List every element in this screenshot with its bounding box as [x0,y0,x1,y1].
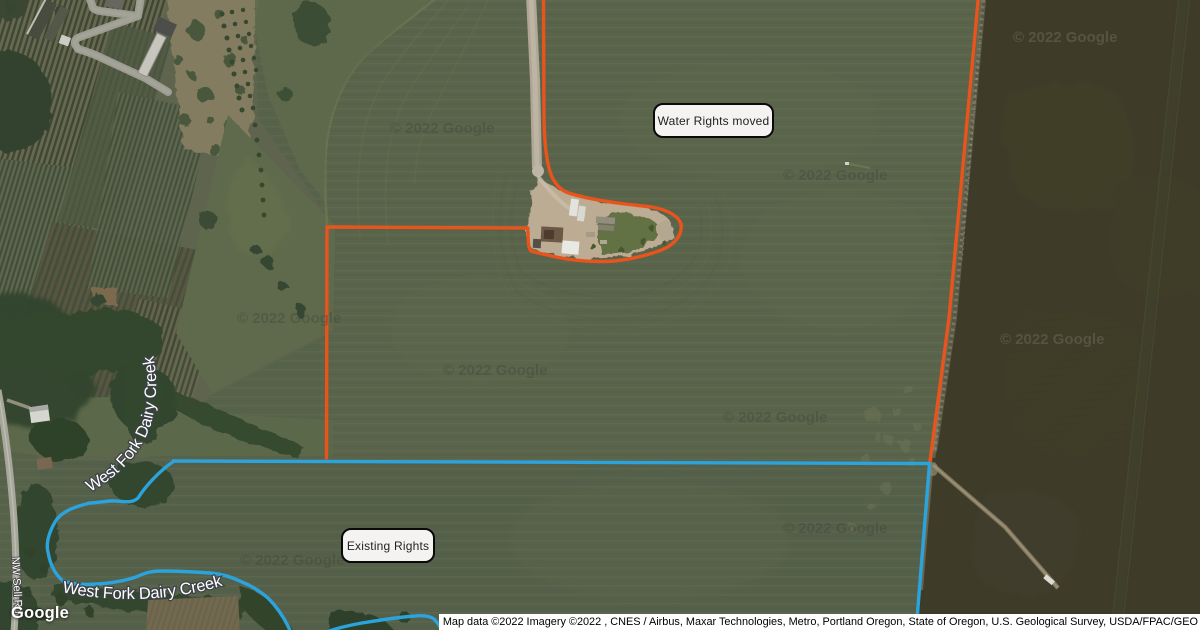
svg-text:© 2022 Google: © 2022 Google [240,552,344,569]
svg-text:© 2022 Google: © 2022 Google [783,167,887,184]
svg-text:© 2022 Google: © 2022 Google [1000,331,1104,348]
svg-text:© 2022 Google: © 2022 Google [443,362,547,379]
svg-text:© 2022 Google: © 2022 Google [783,520,887,537]
svg-text:© 2022 Google: © 2022 Google [723,409,827,426]
svg-text:© 2022 Google: © 2022 Google [390,120,494,137]
svg-text:© 2022 Google: © 2022 Google [237,310,341,327]
svg-text:© 2022 Google: © 2022 Google [1013,29,1117,46]
